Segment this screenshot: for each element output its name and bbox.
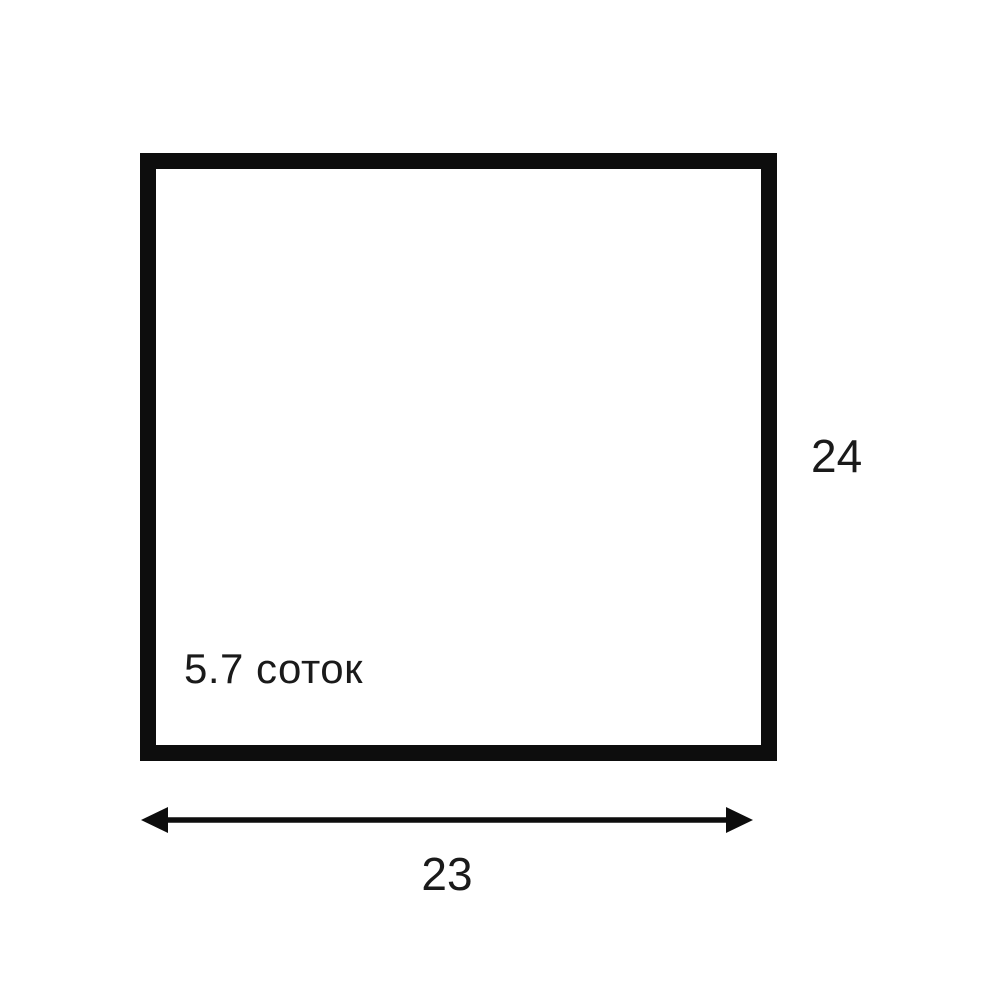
plot-height-label: 24 xyxy=(811,433,862,479)
plot-width-label: 23 xyxy=(140,851,754,897)
width-dimension-arrow-icon xyxy=(140,806,754,834)
arrow-right-head xyxy=(726,807,753,833)
arrow-left-head xyxy=(141,807,168,833)
diagram-canvas: 5.7 соток 24 23 xyxy=(0,0,982,990)
plot-area-label: 5.7 соток xyxy=(184,646,363,692)
